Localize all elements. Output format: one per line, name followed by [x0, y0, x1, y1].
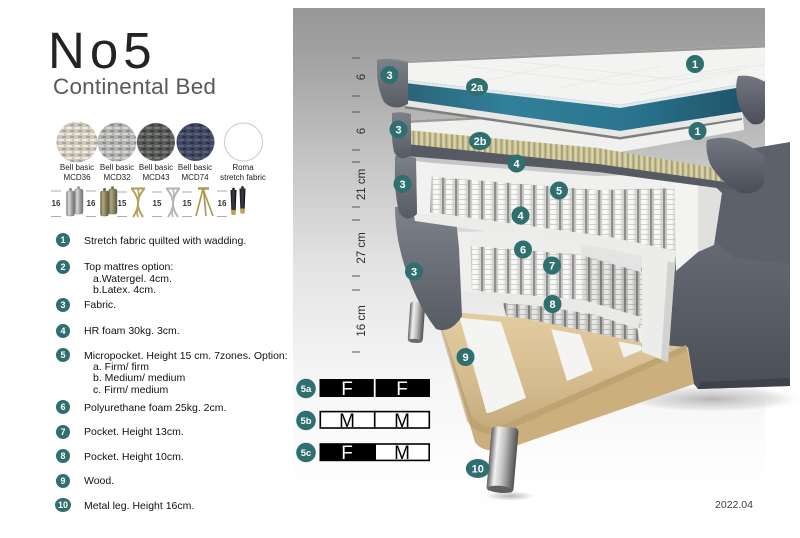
svg-text:7: 7	[549, 260, 555, 272]
svg-text:27 cm: 27 cm	[356, 232, 368, 263]
svg-text:5c: 5c	[301, 448, 312, 459]
svg-text:M: M	[339, 411, 355, 432]
svg-text:8: 8	[549, 299, 555, 311]
svg-text:2a: 2a	[471, 82, 484, 94]
svg-text:3: 3	[386, 70, 392, 82]
svg-text:2022.04: 2022.04	[715, 499, 753, 511]
svg-text:F: F	[341, 379, 353, 400]
svg-text:F: F	[396, 379, 408, 400]
svg-text:6: 6	[356, 128, 368, 134]
svg-text:1: 1	[694, 126, 700, 138]
svg-text:M: M	[394, 411, 410, 432]
svg-text:5b: 5b	[300, 416, 311, 427]
svg-text:16 cm: 16 cm	[356, 305, 368, 336]
svg-text:1: 1	[692, 59, 698, 71]
svg-text:3: 3	[411, 266, 417, 278]
svg-text:F: F	[341, 443, 353, 464]
svg-text:4: 4	[513, 158, 520, 170]
svg-text:4: 4	[517, 210, 524, 222]
svg-text:10: 10	[472, 463, 484, 475]
svg-text:2b: 2b	[474, 136, 487, 148]
svg-text:5a: 5a	[301, 384, 312, 395]
svg-text:21 cm: 21 cm	[356, 169, 368, 200]
svg-text:6: 6	[520, 244, 526, 256]
svg-text:9: 9	[462, 352, 468, 364]
svg-text:3: 3	[399, 179, 405, 191]
svg-text:5: 5	[556, 185, 562, 197]
svg-text:6: 6	[356, 74, 368, 80]
svg-text:M: M	[394, 443, 410, 464]
svg-text:3: 3	[395, 124, 401, 136]
